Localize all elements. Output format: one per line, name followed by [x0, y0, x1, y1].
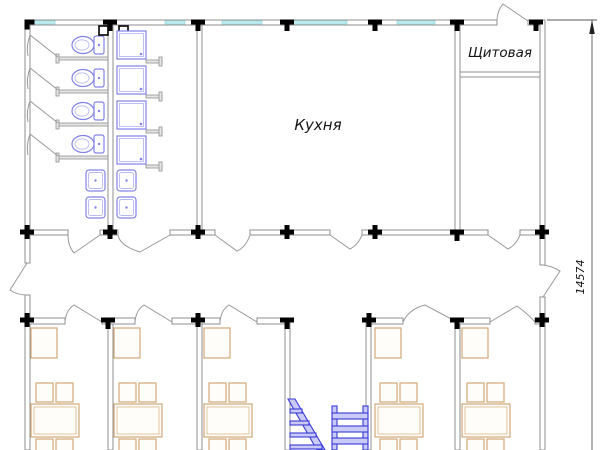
kitchen-label: Кухня — [294, 116, 341, 134]
shower-partitions — [146, 57, 162, 171]
wall-segment — [455, 25, 460, 230]
stall-partition — [58, 123, 108, 126]
door-swing — [543, 265, 560, 297]
room-furniture — [375, 328, 423, 450]
room-furniture — [462, 328, 510, 450]
wall-junction-marker — [20, 313, 34, 327]
wall-segment — [108, 324, 113, 450]
toilet-icon — [72, 135, 104, 153]
washbasin-icon — [86, 170, 105, 191]
washbasin-icon — [86, 197, 105, 218]
wall-junction-marker — [191, 313, 205, 327]
wall-junction-marker — [103, 225, 117, 239]
partition-cap — [159, 162, 162, 171]
washbasin-icon — [117, 170, 136, 191]
door-swing — [27, 35, 58, 57]
stair-tread — [290, 433, 316, 437]
door-swing — [10, 263, 27, 295]
wall-junction-marker — [25, 20, 35, 30]
shower-cabin-icon — [117, 101, 146, 129]
switchboard-label: Щитовая — [468, 45, 532, 61]
room-furniture — [114, 328, 162, 450]
door-swing — [488, 235, 520, 249]
partition-cap — [159, 92, 162, 101]
stair-tread — [290, 421, 309, 425]
door-swing — [490, 306, 535, 322]
door-swing — [135, 305, 172, 322]
kitchen-room: Кухня — [294, 116, 341, 134]
window — [222, 21, 262, 24]
dimension-label: 14574 — [574, 260, 587, 295]
stall-doors — [27, 35, 58, 156]
dimension: 14574 — [547, 20, 597, 450]
switchboard-room: Щитовая — [468, 45, 532, 61]
shower-room — [86, 26, 162, 218]
ladder-tread — [332, 438, 368, 444]
vent-shaft-icon — [99, 26, 108, 35]
room-furniture — [204, 328, 252, 450]
door-swing — [27, 101, 58, 123]
wall-junction-marker — [535, 225, 549, 239]
stair-tread — [290, 445, 322, 449]
toilet-icon — [72, 69, 104, 87]
door-swing — [497, 4, 528, 21]
wall-junction-marker — [191, 225, 205, 239]
window — [33, 21, 55, 24]
door-swing — [27, 134, 58, 156]
wall-junction-marker — [535, 313, 549, 327]
door-swing — [118, 235, 170, 252]
toilet-icon — [72, 102, 104, 120]
wall-junction-marker — [280, 225, 294, 239]
stall-partition — [58, 90, 108, 93]
partition-cap — [159, 127, 162, 136]
stall-partition — [58, 156, 108, 159]
wall-segment — [460, 72, 540, 77]
door-swing — [330, 235, 362, 249]
entrance-stairs — [288, 399, 368, 450]
floor-plan-svg: Кухня Щитовая — [0, 0, 600, 450]
door-swing — [403, 305, 457, 322]
toilet-room — [27, 26, 108, 162]
door-swing — [220, 305, 257, 322]
wall-segment — [197, 324, 202, 450]
window — [292, 21, 347, 24]
stall-partition — [58, 57, 108, 60]
drawing-canvas: Кухня Щитовая — [0, 0, 600, 450]
bedroom-block — [31, 328, 510, 450]
window — [397, 21, 435, 24]
wall-segment — [197, 25, 202, 230]
wall-junction-marker — [368, 225, 382, 239]
door-swing — [27, 68, 58, 90]
shower-cabin-icon — [117, 66, 146, 94]
shower-cabin-icon — [117, 31, 146, 59]
shower-cabin-icon — [117, 136, 146, 164]
washbasin-icon — [117, 197, 136, 218]
partition-cap — [159, 57, 162, 66]
dimension-arrow — [589, 20, 595, 34]
room-furniture — [31, 328, 79, 450]
stair-tread — [290, 409, 302, 413]
window — [165, 21, 185, 24]
door-swing — [68, 235, 100, 253]
wall-junction-marker — [362, 313, 376, 327]
wall-segment — [108, 25, 113, 230]
wall-junction-marker — [20, 225, 34, 239]
ladder-tread — [332, 426, 368, 432]
wall-segment — [455, 324, 460, 450]
toilet-icon — [72, 36, 104, 54]
door-swing — [65, 305, 102, 322]
corridor-doors — [65, 235, 535, 322]
wall-segment — [285, 318, 290, 450]
door-swing — [215, 235, 250, 251]
ladder-tread — [332, 413, 368, 419]
